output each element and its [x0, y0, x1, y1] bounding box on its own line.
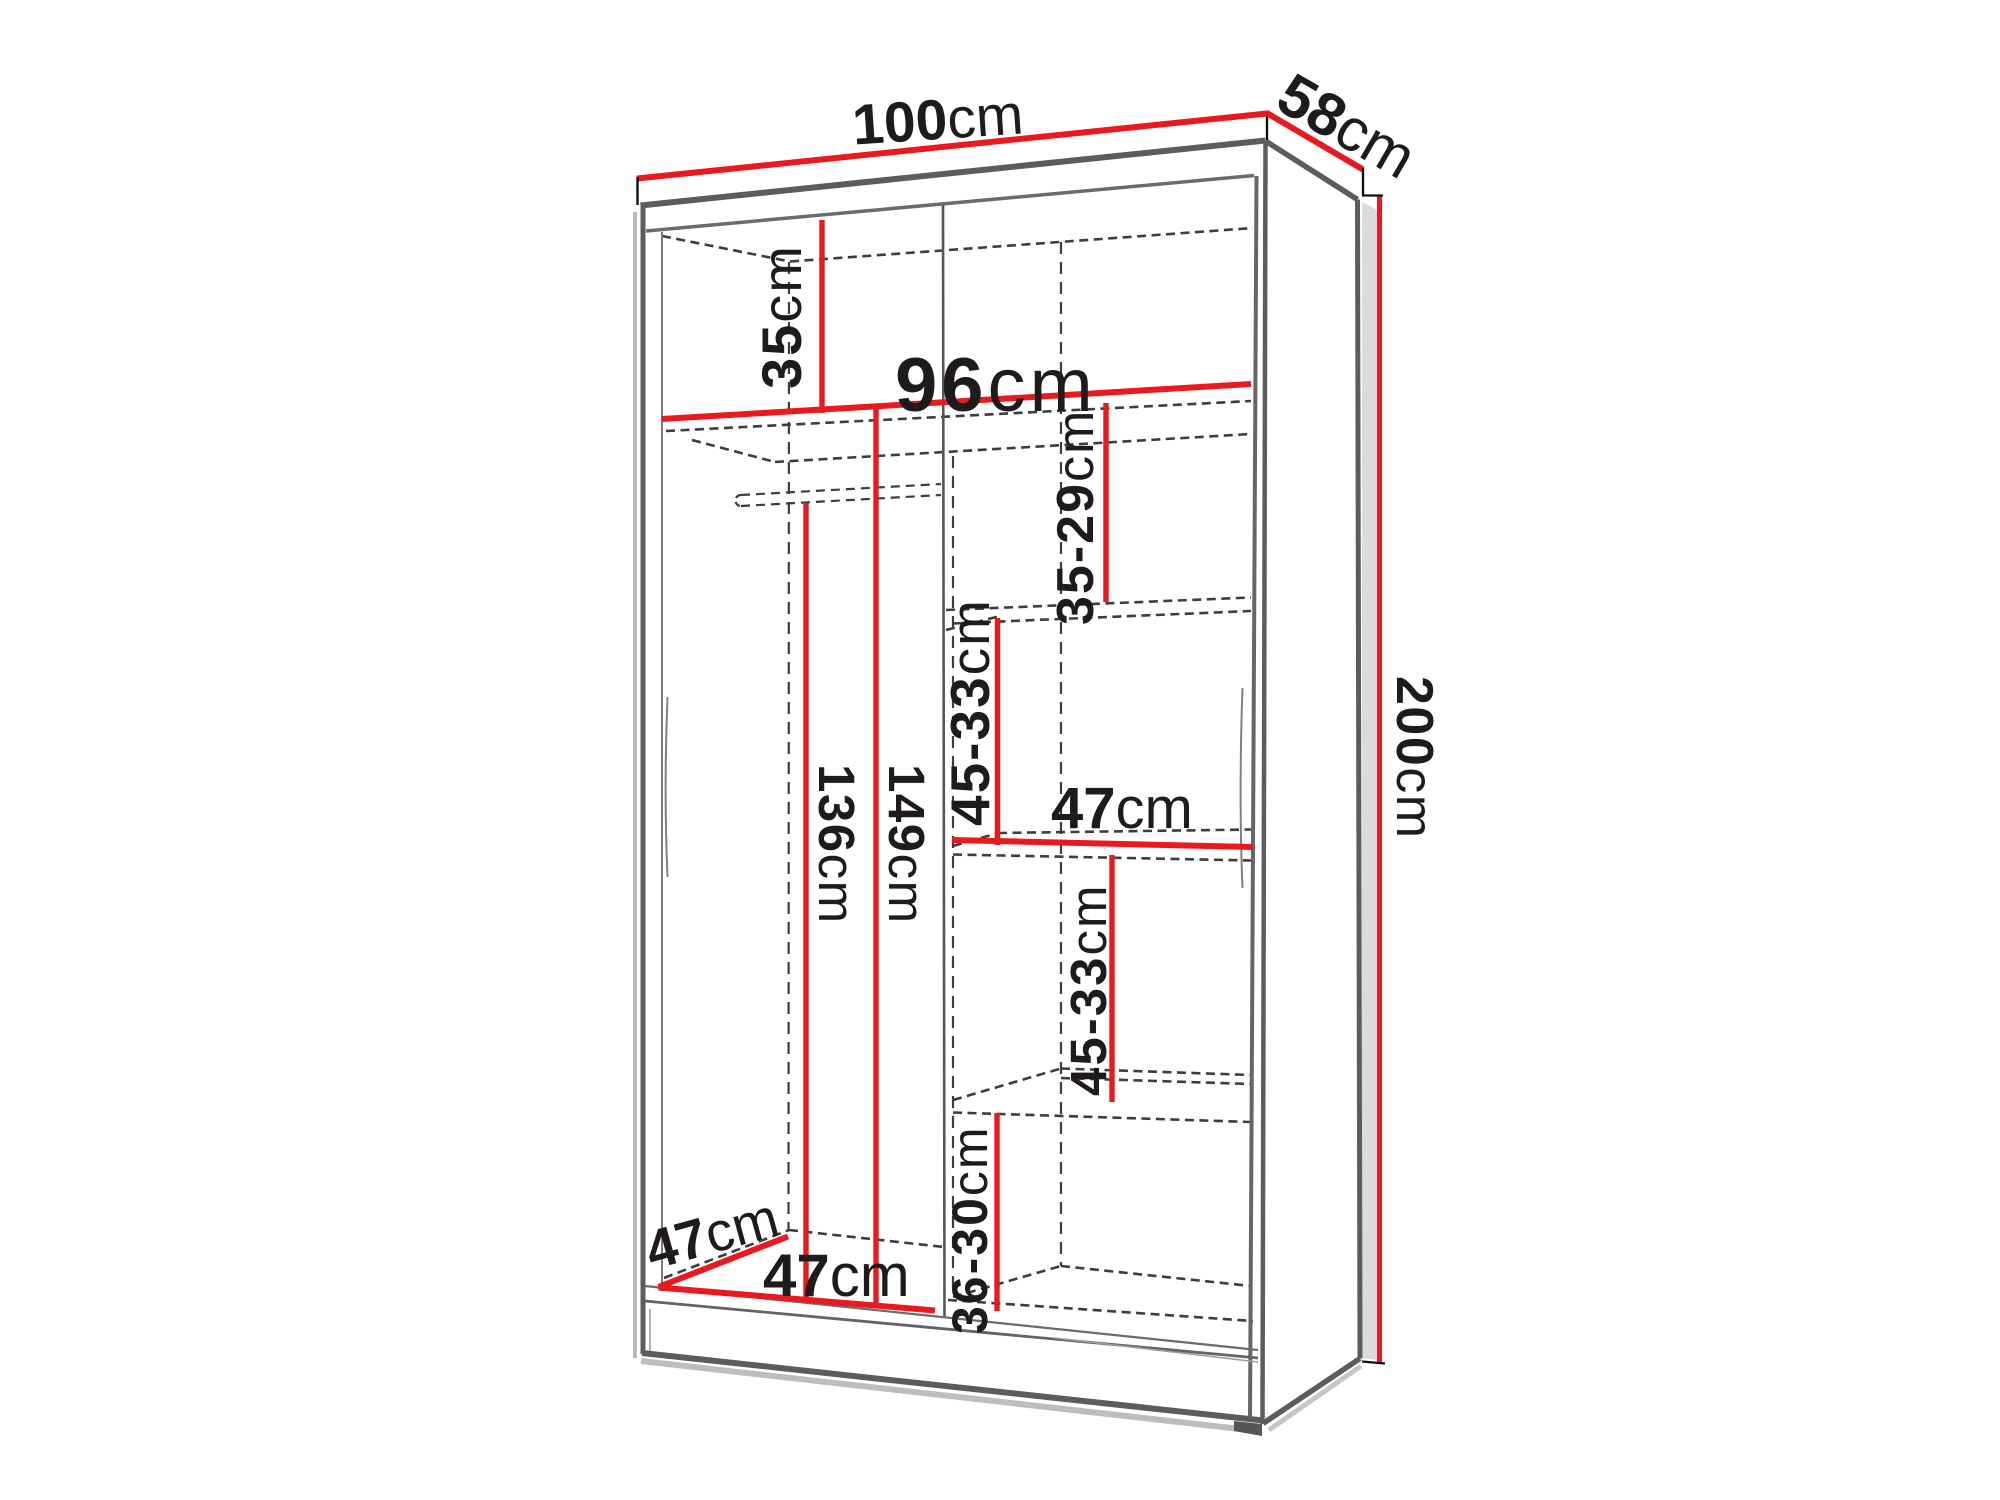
svg-text:45-33cm: 45-33cm	[939, 598, 1001, 826]
svg-text:200cm: 200cm	[1385, 676, 1443, 840]
svg-text:149cm: 149cm	[878, 764, 935, 925]
svg-text:35-29cm: 35-29cm	[1047, 409, 1105, 625]
svg-text:45-33cm: 45-33cm	[1060, 884, 1117, 1096]
svg-text:136cm: 136cm	[808, 764, 865, 925]
svg-text:36-30cm: 36-30cm	[942, 1125, 998, 1334]
svg-text:35cm: 35cm	[750, 244, 813, 389]
svg-text:47cm: 47cm	[763, 1242, 910, 1309]
svg-text:47cm: 47cm	[1051, 776, 1193, 841]
svg-text:100cm: 100cm	[850, 82, 1025, 157]
